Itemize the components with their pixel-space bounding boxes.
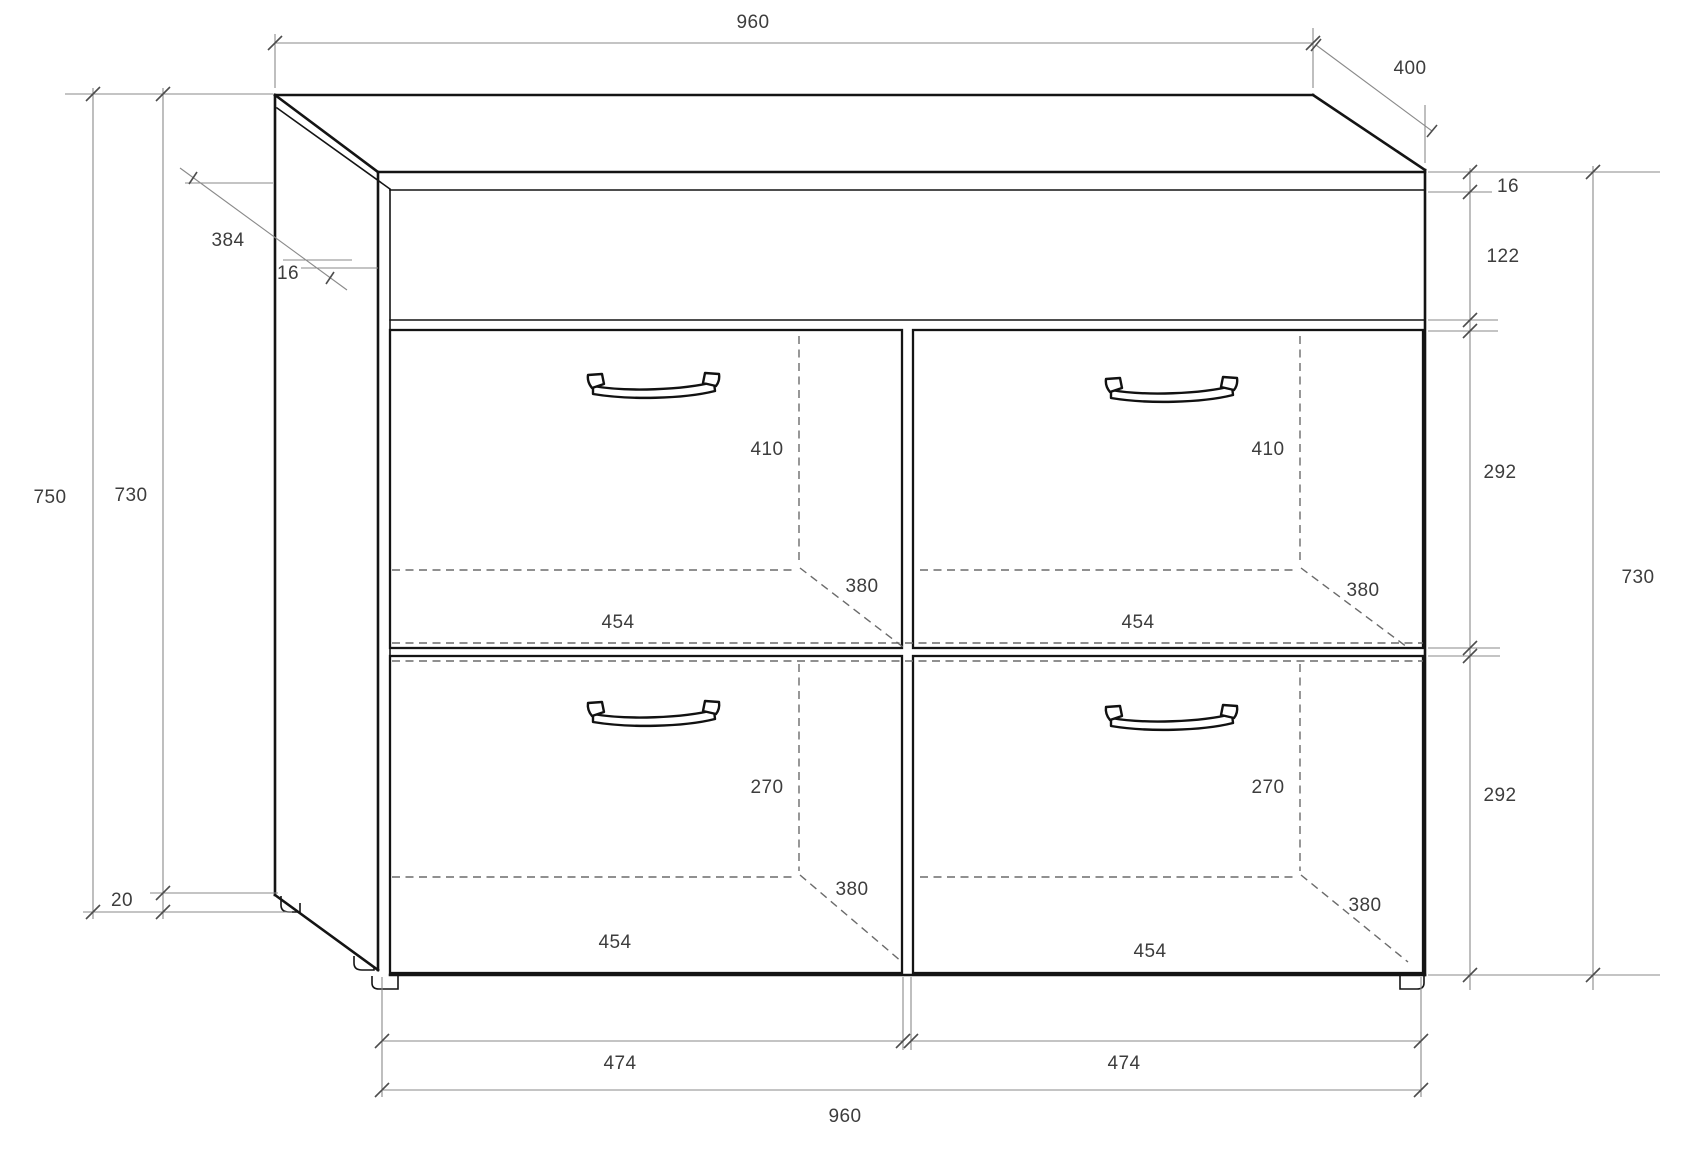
dim-label-side-panel-thickness: 16 [277, 263, 299, 284]
dim-label-upper-section-height: 292 [1484, 462, 1517, 483]
dim-label-lower-right-box-width: 454 [1134, 941, 1167, 962]
dim-label-lower-left-box-width: 454 [599, 932, 632, 953]
dim-label-total-height: 750 [34, 487, 67, 508]
drawer-front-lower-left [390, 656, 902, 973]
dim-label-apron-height: 122 [1487, 246, 1520, 267]
dim-label-lower-left-box-depth: 380 [836, 879, 869, 900]
drawing-canvas: 960 400 384 16 750 730 20 16 122 292 730… [0, 0, 1700, 1151]
dim-label-upper-right-box-height: 410 [1252, 439, 1285, 460]
drawer-front-lower-right [913, 656, 1423, 973]
dim-label-upper-right-box-width: 454 [1122, 612, 1155, 633]
dim-label-lower-right-box-depth: 380 [1349, 895, 1382, 916]
cabinet-dimension-drawing: 960 400 384 16 750 730 20 16 122 292 730… [0, 0, 1700, 1151]
dim-label-top-width: 960 [737, 12, 770, 33]
dim-label-lower-left-box-height: 270 [751, 777, 784, 798]
drawer-front-upper-left [390, 330, 902, 648]
top-right-depth-edge [1313, 95, 1425, 170]
foot-front-right [1400, 976, 1424, 989]
dim-label-depth: 400 [1394, 58, 1427, 79]
top-left-depth-edge-inner [277, 108, 390, 189]
dim-label-upper-left-box-width: 454 [602, 612, 635, 633]
dim-label-upper-right-box-depth: 380 [1347, 580, 1380, 601]
top-left-depth-edge [275, 95, 378, 172]
dim-label-carcass-height-left: 730 [115, 485, 148, 506]
dim-label-right-front-width: 474 [1108, 1053, 1141, 1074]
dim-label-left-front-width: 474 [604, 1053, 637, 1074]
dim-line-side-depth [180, 168, 347, 290]
dim-label-lower-right-box-height: 270 [1252, 777, 1285, 798]
dim-label-side-depth: 384 [212, 230, 245, 251]
dim-label-top-thickness: 16 [1497, 176, 1519, 197]
foot-front-left [372, 976, 398, 989]
foot-side-left [354, 956, 374, 970]
dim-label-plinth-height: 20 [111, 890, 133, 911]
dim-label-lower-section-height: 292 [1484, 785, 1517, 806]
dim-label-bottom-width: 960 [829, 1106, 862, 1127]
dim-label-carcass-height-right: 730 [1622, 567, 1655, 588]
dim-label-upper-left-box-depth: 380 [846, 576, 879, 597]
dim-label-upper-left-box-height: 410 [751, 439, 784, 460]
side-bottom-edge [275, 895, 378, 970]
